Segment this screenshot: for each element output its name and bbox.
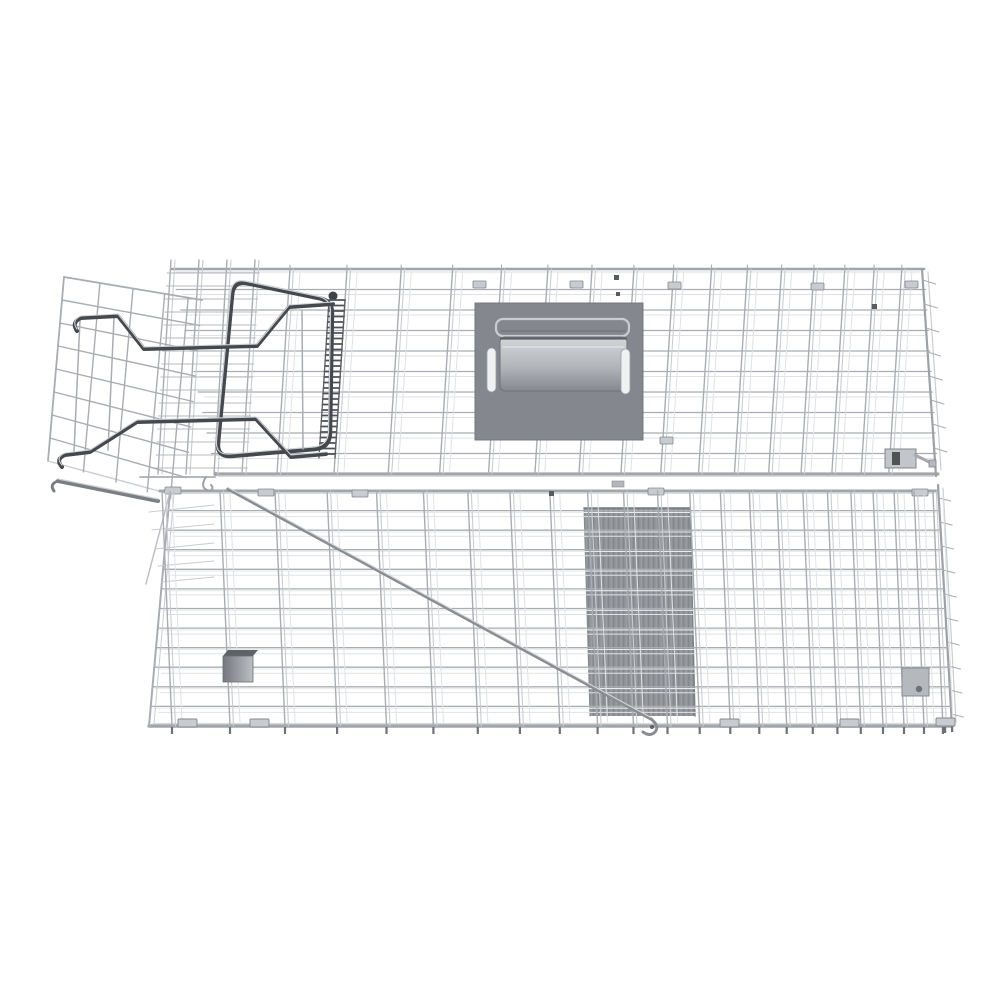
front-panel-mesh: [146, 491, 953, 734]
trap-cage-render: Humane live animal trap cage made of gal…: [0, 0, 1000, 1000]
door-guide-band: [155, 260, 259, 474]
carry-handle-plate: [475, 303, 643, 440]
product-image-canvas: Humane live animal trap cage made of gal…: [0, 0, 1000, 1000]
trip-plate-pedal: [584, 508, 695, 716]
